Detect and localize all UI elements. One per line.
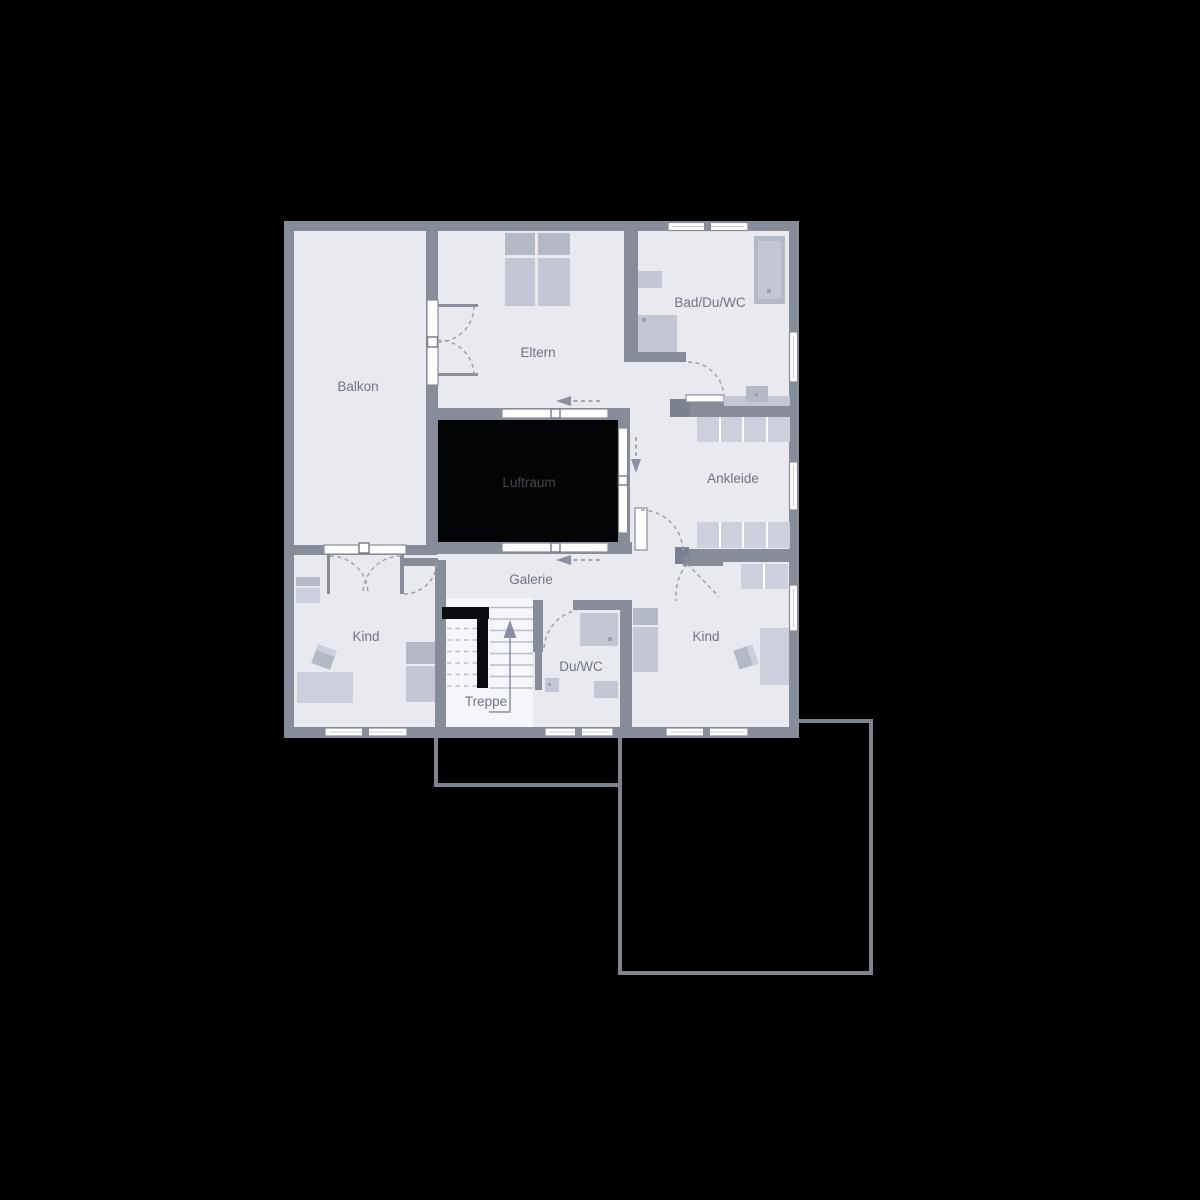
shelf-kind-left <box>296 577 320 603</box>
wall-kind-left-treppe <box>435 560 446 727</box>
sliding-door-galerie <box>502 543 608 552</box>
washbasin-bad <box>638 271 662 288</box>
stair-rail-middle <box>477 607 488 688</box>
window-kind-right-bottom <box>666 728 748 736</box>
wall-eltern-bad <box>624 231 638 352</box>
closet-kind-right <box>741 564 788 589</box>
sliding-door-ankleide-side <box>619 428 628 533</box>
room-label-kind-left: Kind <box>352 629 379 644</box>
lower-floor-outline-left <box>436 738 620 785</box>
window-bad-right <box>790 332 798 382</box>
window-duwc-bottom <box>545 728 613 736</box>
wc-duwc <box>545 678 559 692</box>
desk-kind-right <box>760 628 789 685</box>
bed-kind-left <box>406 642 435 702</box>
floor-plan-page: Balkon Eltern Bad/Du/WC Luftraum Ankleid… <box>0 0 1200 1200</box>
room-label-treppe: Treppe <box>465 694 507 709</box>
door-leaf-duwc <box>535 652 542 690</box>
sliding-door-eltern <box>502 409 608 418</box>
wall-duwc-top <box>573 600 627 610</box>
bathtub <box>754 236 785 304</box>
room-label-galerie: Galerie <box>509 572 553 587</box>
bed-kind-right <box>633 608 658 672</box>
window-bad-top <box>668 223 748 231</box>
wall-treppe-duwc <box>533 600 543 652</box>
wall-duwc-kind-right <box>620 600 632 727</box>
room-label-eltern: Eltern <box>520 345 555 360</box>
room-label-ankleide: Ankleide <box>707 471 759 486</box>
room-label-balkon: Balkon <box>337 379 378 394</box>
room-label-kind-right: Kind <box>692 629 719 644</box>
wardrobe-ankleide-bottom <box>697 522 790 548</box>
window-ankleide-right <box>790 462 798 510</box>
wall-stub-kind-left <box>404 558 438 566</box>
desk-kind-left <box>297 672 353 703</box>
shower-duwc <box>580 613 618 646</box>
room-label-du-wc: Du/WC <box>559 659 603 674</box>
wall-bad-entry-top <box>624 352 686 362</box>
wardrobe-ankleide-top <box>697 417 790 442</box>
room-label-bad-du-wc: Bad/Du/WC <box>674 295 746 310</box>
door-leaf-kind-right <box>683 557 723 566</box>
washbasin-duwc <box>594 681 618 698</box>
window-kind-left-bottom <box>325 728 407 736</box>
room-label-luftraum: Luftraum <box>502 475 555 490</box>
window-kind-right-wall <box>790 585 798 631</box>
shower-bad <box>638 315 677 352</box>
floor-plan-svg: Balkon Eltern Bad/Du/WC Luftraum Ankleid… <box>0 0 1200 1200</box>
lower-floor-outline-right <box>620 721 871 973</box>
lower-floor-outline <box>436 721 871 973</box>
wall-balkon-eltern <box>426 231 438 553</box>
